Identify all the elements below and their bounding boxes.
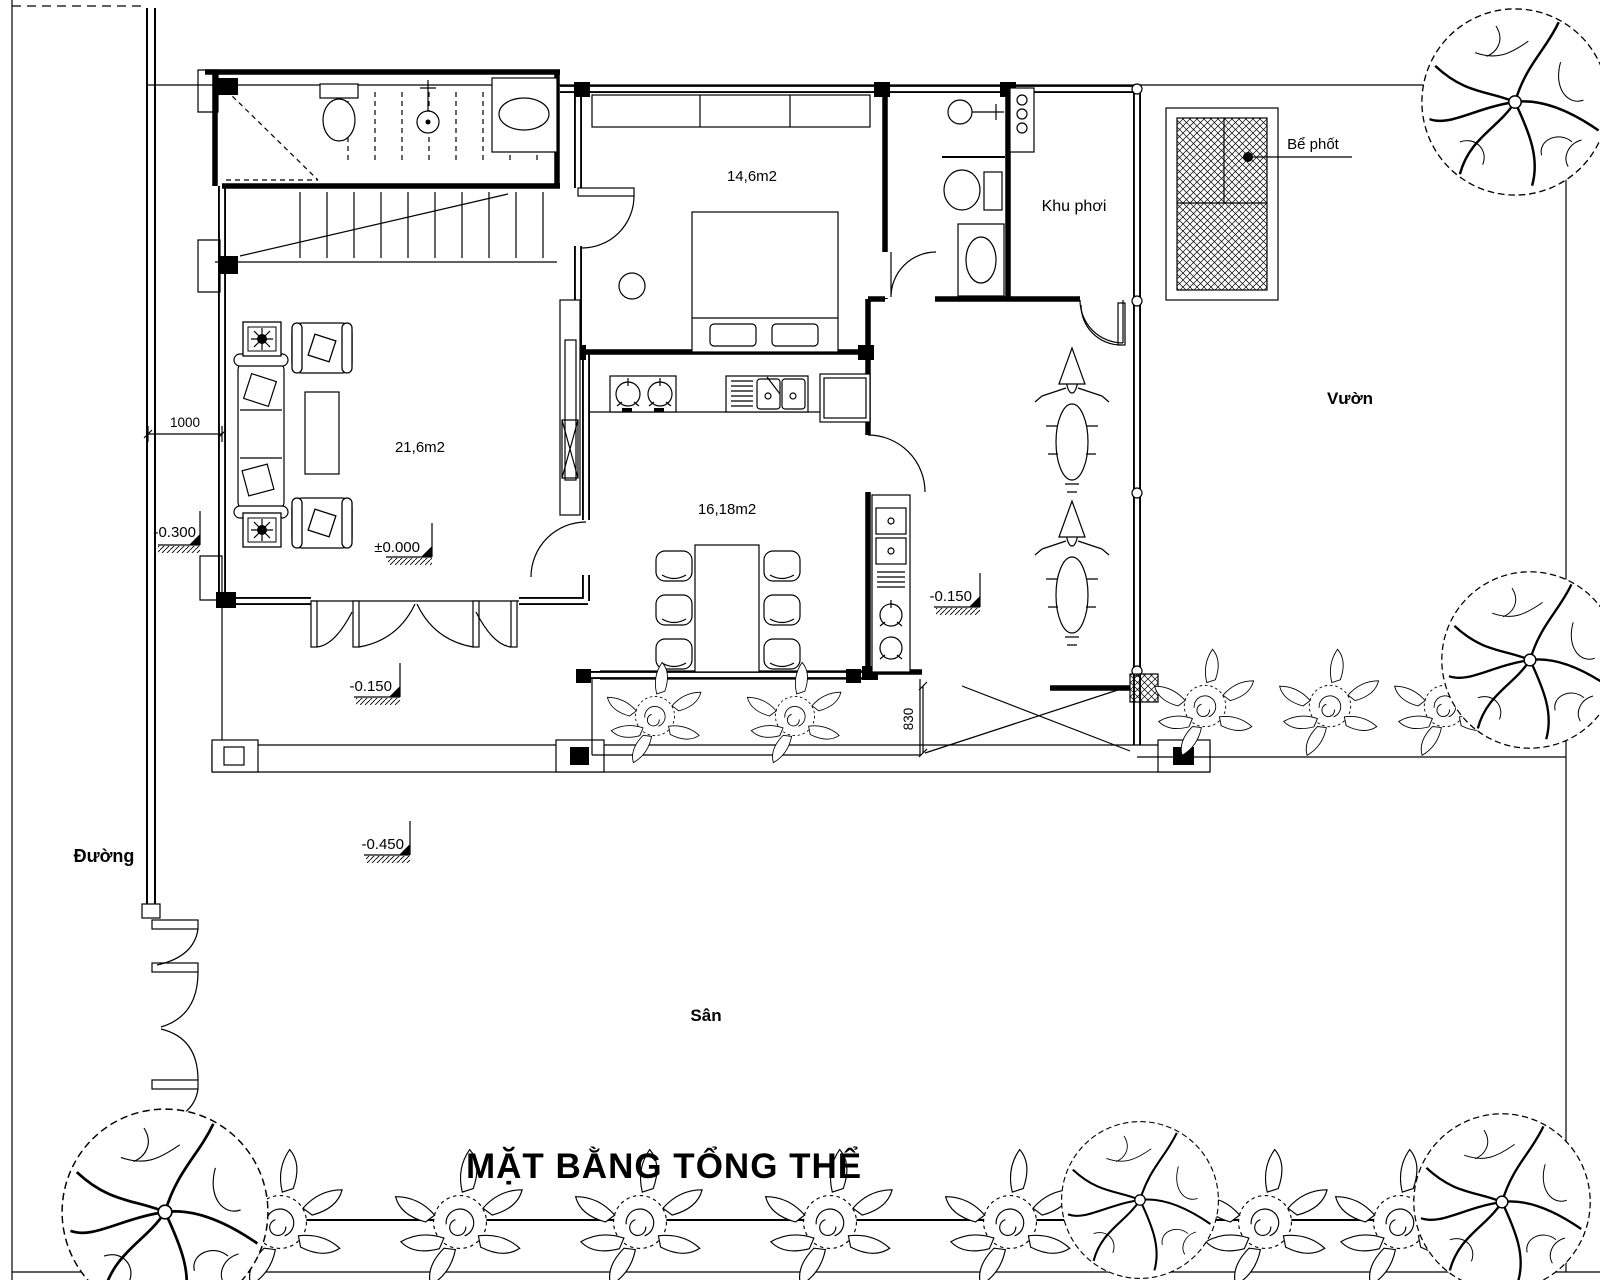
living-door xyxy=(531,522,586,577)
dining-room: 16,18m2 xyxy=(656,501,800,672)
dim-garage-door: 830 xyxy=(901,708,916,731)
dim-setback-value: 1000 xyxy=(170,415,200,430)
armchair xyxy=(292,323,352,373)
chair xyxy=(764,595,800,625)
tv-cabinet xyxy=(560,300,580,515)
tree xyxy=(1414,1114,1590,1280)
tree xyxy=(62,1109,268,1280)
bedroom-area-label: 14,6m2 xyxy=(727,168,777,185)
yard-label: Sân xyxy=(690,1006,721,1025)
bedroom-door xyxy=(578,188,634,248)
level-sidewalk-value: -0.300 xyxy=(153,524,196,541)
motorbike xyxy=(1035,348,1109,492)
entry-gate xyxy=(152,920,198,1134)
living-room: 21,6m2 xyxy=(234,300,586,577)
bathroom xyxy=(891,100,1005,297)
road-label: Đường xyxy=(74,846,135,866)
plant-pot xyxy=(243,322,281,356)
level-yard: -0.450 xyxy=(361,821,410,863)
toilet xyxy=(320,84,358,141)
septic-tank: Bể phốt xyxy=(1166,108,1352,300)
bedroom: 14,6m2 xyxy=(578,95,870,352)
dining-table xyxy=(695,545,759,672)
drawing-title: MẶT BẰNG TỔNG THỂ xyxy=(466,1146,862,1186)
garage xyxy=(868,348,1109,672)
shower-head xyxy=(948,100,1004,124)
dim-setback: 1000 xyxy=(144,415,226,442)
wash-basin xyxy=(958,224,1004,296)
toilet xyxy=(944,170,1002,210)
armchair xyxy=(292,498,352,548)
kitchen-sink xyxy=(726,376,808,412)
level-sidewalk: -0.300 xyxy=(153,511,200,553)
stove xyxy=(610,376,676,412)
shrub xyxy=(1201,1150,1328,1280)
bed xyxy=(692,212,838,352)
level-markers: ±0.000 -0.150 -0.150 -0.450 -0.3 xyxy=(153,511,980,863)
septic-tank-label: Bể phốt xyxy=(1287,136,1340,153)
bedside-stool xyxy=(619,273,645,299)
landscape xyxy=(62,9,1600,1280)
wc-under-stairs xyxy=(320,78,557,152)
site-boundary xyxy=(12,0,1600,1280)
dining-area-label: 16,18m2 xyxy=(698,501,756,518)
gate-pillar xyxy=(1130,674,1158,702)
chair xyxy=(764,639,800,669)
living-area-label: 21,6m2 xyxy=(395,439,445,456)
front-folding-door xyxy=(311,601,519,647)
site-plan-drawing: 14,6m2 Khu phơi xyxy=(0,0,1600,1280)
coffee-table xyxy=(305,392,339,474)
shrub xyxy=(946,1150,1073,1280)
chair xyxy=(764,551,800,581)
level-yard-value: -0.450 xyxy=(361,836,404,853)
tree xyxy=(1062,1122,1219,1279)
tree xyxy=(1422,9,1600,195)
level-garage: -0.150 xyxy=(929,573,980,615)
outdoor-kitchen xyxy=(872,495,910,672)
motorbike xyxy=(1035,501,1109,645)
level-porch: -0.150 xyxy=(349,663,400,705)
sink xyxy=(492,78,557,152)
floor-plan-sheet: 14,6m2 Khu phơi xyxy=(0,0,1600,1280)
rear-door xyxy=(1080,300,1123,343)
counter-appliance xyxy=(820,374,870,422)
bathroom-door xyxy=(891,252,936,297)
shower xyxy=(417,80,439,133)
plant-pot xyxy=(243,513,281,547)
drying-area: Khu phơi xyxy=(1010,88,1125,345)
sofa xyxy=(234,354,288,518)
garden-label: Vườn xyxy=(1327,389,1373,408)
level-porch-value: -0.150 xyxy=(349,678,392,695)
level-zero-value: ±0.000 xyxy=(374,539,420,556)
level-garage-value: -0.150 xyxy=(929,588,972,605)
dim-garage-door-value: 830 xyxy=(901,708,916,731)
chair xyxy=(656,551,692,581)
chair xyxy=(656,595,692,625)
wardrobe xyxy=(592,95,870,127)
level-zero: ±0.000 xyxy=(374,523,432,565)
drying-area-label: Khu phơi xyxy=(1042,198,1107,215)
shrub xyxy=(1280,649,1379,755)
kitchen xyxy=(590,374,870,422)
garage-door-arc xyxy=(868,435,925,492)
